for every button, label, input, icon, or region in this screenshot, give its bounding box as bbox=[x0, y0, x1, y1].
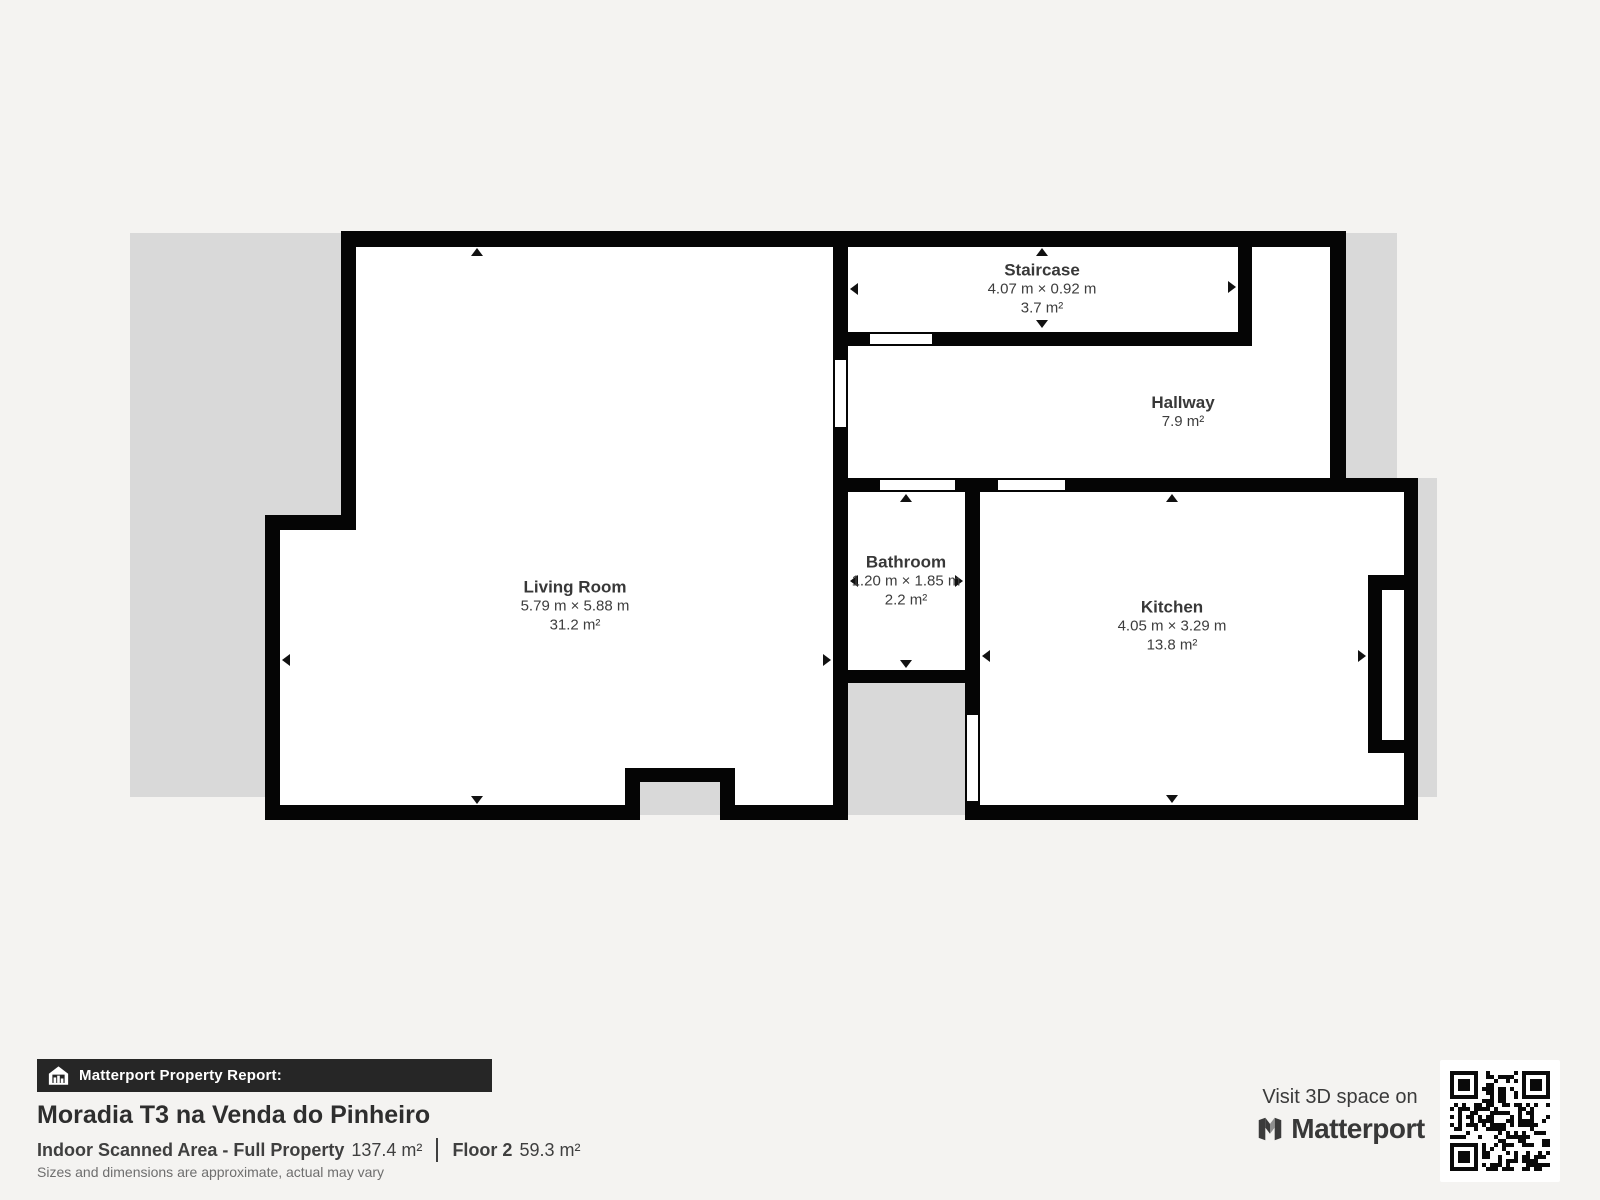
unscanned-area bbox=[1346, 233, 1397, 478]
dim-arrow-up bbox=[471, 248, 483, 256]
unscanned-area bbox=[1418, 478, 1437, 797]
area-info-line: Indoor Scanned Area - Full Property 137.… bbox=[37, 1138, 580, 1162]
room-label-hallway: Hallway 7.9 m² bbox=[1151, 393, 1214, 431]
wall bbox=[965, 805, 1418, 820]
room-name: Hallway bbox=[1151, 393, 1214, 412]
wall bbox=[341, 231, 356, 530]
window-opening bbox=[835, 360, 846, 427]
floor-plan: Living Room 5.79 m × 5.88 m 31.2 m² Stai… bbox=[0, 0, 1600, 1000]
dim-arrow-up bbox=[1166, 494, 1178, 502]
dim-arrow-left bbox=[982, 650, 990, 662]
disclaimer-text: Sizes and dimensions are approximate, ac… bbox=[37, 1164, 384, 1180]
room-dimensions: 4.07 m × 0.92 m bbox=[988, 280, 1097, 299]
property-title: Moradia T3 na Venda do Pinheiro bbox=[37, 1101, 430, 1130]
wall bbox=[720, 805, 848, 820]
door-opening bbox=[967, 715, 978, 801]
room-area-living-room bbox=[280, 515, 833, 805]
room-area: 2.2 m² bbox=[852, 591, 961, 610]
dim-arrow-left bbox=[850, 283, 858, 295]
dim-arrow-down bbox=[1036, 320, 1048, 328]
house-report-icon bbox=[48, 1065, 69, 1086]
scanned-area-label: Indoor Scanned Area - Full Property bbox=[37, 1140, 344, 1161]
room-name: Staircase bbox=[988, 261, 1097, 280]
unscanned-area bbox=[130, 233, 341, 515]
window-opening bbox=[1382, 590, 1404, 740]
visit-text: Visit 3D space on bbox=[1262, 1086, 1417, 1109]
room-label-kitchen: Kitchen 4.05 m × 3.29 m 13.8 m² bbox=[1118, 598, 1227, 655]
qr-code bbox=[1440, 1060, 1560, 1182]
room-area: 3.7 m² bbox=[988, 299, 1097, 318]
dim-arrow-up bbox=[1036, 248, 1048, 256]
wall bbox=[265, 805, 640, 820]
room-name: Bathroom bbox=[852, 553, 961, 572]
door-opening bbox=[870, 334, 932, 344]
room-dimensions: 4.05 m × 3.29 m bbox=[1118, 617, 1227, 636]
wall bbox=[625, 768, 735, 782]
wall bbox=[1330, 231, 1346, 492]
unscanned-area bbox=[640, 782, 720, 815]
wall bbox=[265, 515, 280, 820]
dim-arrow-up bbox=[900, 494, 912, 502]
room-area: 31.2 m² bbox=[521, 616, 630, 635]
matterport-logo: Matterport bbox=[1255, 1113, 1424, 1145]
dim-arrow-down bbox=[900, 660, 912, 668]
floor-label: Floor 2 bbox=[452, 1140, 512, 1161]
matterport-wordmark: Matterport bbox=[1291, 1113, 1424, 1145]
room-area: 7.9 m² bbox=[1151, 412, 1214, 431]
floor-value: 59.3 m² bbox=[519, 1140, 580, 1161]
report-bar-label: Matterport Property Report: bbox=[79, 1067, 282, 1084]
dim-arrow-right bbox=[823, 654, 831, 666]
room-label-staircase: Staircase 4.07 m × 0.92 m 3.7 m² bbox=[988, 261, 1097, 318]
door-opening bbox=[880, 480, 955, 490]
unscanned-area bbox=[848, 683, 965, 815]
dim-arrow-right bbox=[1358, 650, 1366, 662]
report-header-bar: Matterport Property Report: bbox=[37, 1059, 492, 1092]
room-dimensions: 1.20 m × 1.85 m bbox=[852, 572, 961, 591]
wall bbox=[833, 670, 980, 683]
wall bbox=[833, 231, 848, 820]
room-area-living-room bbox=[356, 246, 833, 515]
unscanned-area bbox=[130, 515, 265, 797]
room-name: Kitchen bbox=[1118, 598, 1227, 617]
dim-arrow-down bbox=[471, 796, 483, 804]
dim-arrow-left bbox=[282, 654, 290, 666]
scanned-area-value: 137.4 m² bbox=[351, 1140, 422, 1161]
room-label-bathroom: Bathroom 1.20 m × 1.85 m 2.2 m² bbox=[852, 553, 961, 610]
room-dimensions: 5.79 m × 5.88 m bbox=[521, 597, 630, 616]
room-label-living-room: Living Room 5.79 m × 5.88 m 31.2 m² bbox=[521, 578, 630, 635]
divider bbox=[436, 1138, 438, 1162]
matterport-promo: Visit 3D space on Matterport bbox=[1255, 1086, 1425, 1145]
wall bbox=[1238, 247, 1252, 346]
door-opening bbox=[998, 480, 1065, 490]
dim-arrow-down bbox=[1166, 795, 1178, 803]
room-name: Living Room bbox=[521, 578, 630, 597]
room-area: 13.8 m² bbox=[1118, 636, 1227, 655]
dim-arrow-right bbox=[1228, 281, 1236, 293]
matterport-logo-icon bbox=[1255, 1114, 1285, 1144]
